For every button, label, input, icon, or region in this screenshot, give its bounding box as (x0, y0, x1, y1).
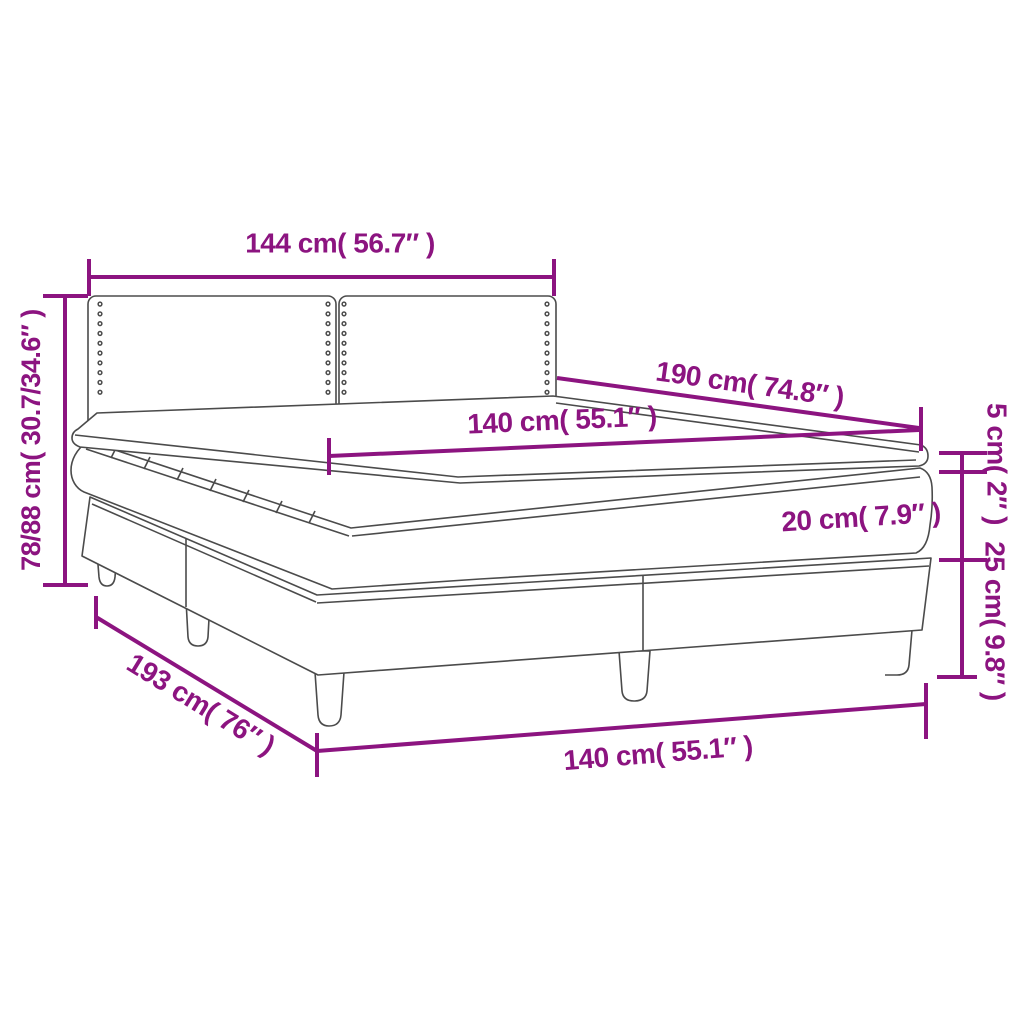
label-topper-height: 5 cm( 2″ ) (982, 403, 1013, 525)
leg (315, 672, 344, 726)
label-base-length: 193 cm( 76″ ) (122, 647, 281, 761)
label-headboard-width: 144 cm( 56.7″ ) (245, 228, 435, 259)
label-base-width: 140 cm( 55.1″ ) (562, 730, 753, 776)
leg (883, 630, 912, 675)
bed-dimension-diagram: 144 cm( 56.7″ ) 78/88 cm( 30.7/34.6″ ) 1… (0, 0, 1024, 1024)
label-overall-height: 78/88 cm( 30.7/34.6″ ) (16, 309, 46, 571)
leg (619, 651, 650, 701)
label-base-height: 25 cm( 9.8″ ) (980, 541, 1011, 700)
dim-right-heights (937, 453, 987, 677)
dim-headboard-width (89, 259, 554, 296)
